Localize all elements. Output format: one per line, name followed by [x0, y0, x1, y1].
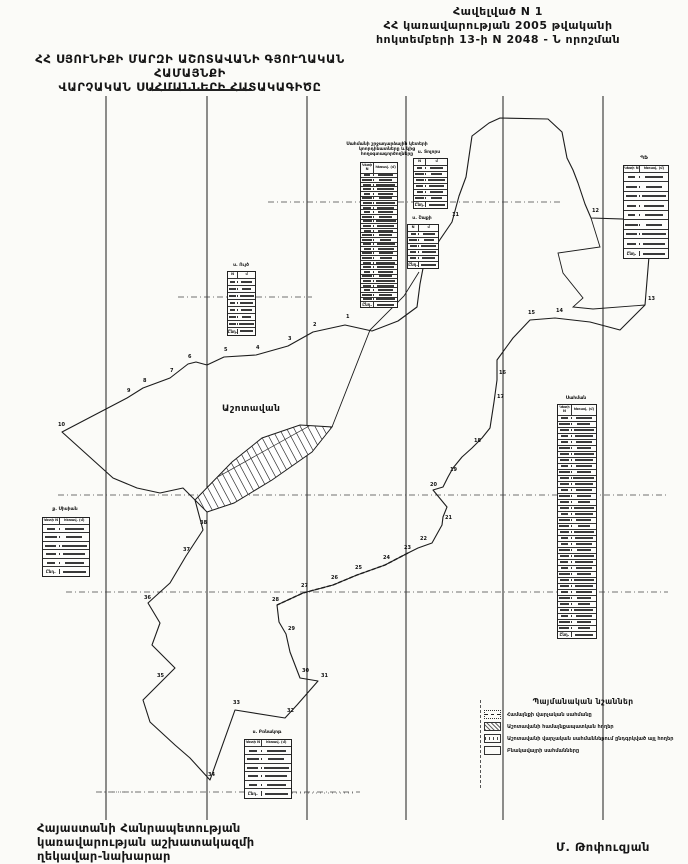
illegible-value — [362, 179, 372, 181]
illegible-value — [575, 537, 593, 539]
table-cell — [558, 579, 572, 581]
illegible-value — [379, 216, 392, 218]
illegible-value — [248, 775, 258, 777]
table-cell — [361, 225, 374, 227]
table-cell — [624, 195, 640, 197]
table-cell — [374, 280, 397, 282]
illegible-value — [574, 555, 594, 557]
illegible-value — [560, 477, 570, 479]
illegible-value — [626, 195, 636, 197]
table-cell — [572, 543, 596, 545]
legend-item: Աշոտավանի համայնքապատկան հողեր — [484, 722, 682, 731]
illegible-value — [559, 573, 570, 575]
table-cell — [374, 266, 397, 268]
table-cell — [572, 417, 596, 419]
illegible-value — [421, 245, 437, 247]
table-header-cell: հեռավ. (մ) — [640, 166, 668, 172]
table-cell — [558, 591, 572, 593]
table-cell — [374, 211, 397, 213]
illegible-value — [578, 501, 590, 503]
boundary-point-number: 6 — [188, 354, 192, 360]
illegible-value — [576, 615, 593, 617]
table-row — [43, 558, 89, 567]
table-cell — [426, 197, 447, 199]
table-cell — [60, 562, 89, 564]
table-total-label: Ընդ. — [624, 251, 640, 256]
illegible-value — [362, 294, 372, 296]
table-row — [228, 320, 255, 327]
table-row — [245, 780, 291, 789]
table-header-row: Կետի Nհեռավ. (մ) — [43, 518, 89, 524]
table-cell — [640, 214, 668, 216]
table-header-cell: Կետի N — [43, 518, 60, 524]
table-cell — [572, 483, 596, 485]
illegible-value — [363, 262, 371, 264]
illegible-value — [645, 214, 663, 216]
boundary-point-number: 25 — [355, 565, 362, 571]
table-header-cell: հեռավ. (մ) — [572, 405, 596, 415]
legend-title: Պայմանական նշաններ — [484, 697, 682, 706]
illegible-value — [561, 615, 568, 617]
table-cell — [572, 471, 596, 473]
illegible-value — [417, 167, 423, 169]
table-cell — [361, 285, 374, 287]
illegible-value — [560, 501, 570, 503]
table-caption-line: Սահման — [552, 396, 600, 401]
illegible-value — [364, 174, 370, 176]
table-cell — [558, 567, 572, 569]
illegible-value — [559, 549, 569, 551]
illegible-value — [560, 609, 569, 611]
adj-brnakot-table: Կետի Nհեռավ. (մ)Ընդ. — [244, 739, 292, 799]
table-cell — [245, 784, 262, 786]
boundary-point-number: 27 — [301, 583, 308, 589]
illegible-value — [575, 435, 593, 437]
table-cell — [374, 239, 397, 241]
illegible-value — [560, 483, 568, 485]
table-cell — [361, 216, 374, 218]
table-total-label: Ընդ. — [414, 202, 426, 207]
table-cell — [572, 561, 596, 563]
map-legend: Պայմանական նշաններ Համայնքի վարչական սահ… — [484, 697, 682, 758]
table-cell — [558, 477, 572, 479]
table-cell — [572, 579, 596, 581]
boundary-point-number: 12 — [592, 208, 599, 214]
table-cell — [361, 275, 374, 277]
illegible-value — [377, 285, 394, 287]
table-cell — [60, 528, 89, 530]
illegible-value — [376, 298, 396, 300]
table-total-value — [60, 571, 89, 573]
illegible-value — [560, 603, 570, 605]
table-cell — [572, 627, 596, 629]
table-cell — [374, 252, 397, 254]
empty-box-icon — [484, 746, 501, 755]
table-cell — [426, 191, 447, 193]
illegible-value — [410, 257, 415, 259]
table-cell — [558, 555, 572, 557]
illegible-value — [363, 220, 372, 222]
table-cell — [558, 501, 572, 503]
illegible-value — [363, 184, 372, 186]
adj-brnakot-title: ս. Բռնակոթ — [236, 730, 298, 735]
illegible-value — [560, 579, 569, 581]
illegible-value — [575, 561, 593, 563]
table-cell — [245, 775, 262, 777]
illegible-value — [560, 459, 568, 461]
adj-sisian-title: ք. Սիսիան — [36, 507, 94, 512]
illegible-value — [229, 323, 236, 325]
illegible-value — [559, 627, 569, 629]
illegible-value — [230, 302, 236, 304]
table-cell — [624, 176, 640, 178]
table-total-row: Ընդ. — [408, 261, 438, 268]
table-cell — [572, 459, 596, 461]
hatch-box-icon — [484, 722, 501, 731]
illegible-value — [65, 562, 84, 564]
table-total-label: Ընդ. — [408, 262, 419, 267]
table-cell — [374, 257, 397, 259]
illegible-value — [642, 195, 665, 197]
table-cell — [374, 225, 397, 227]
table-row — [624, 181, 668, 191]
table-cell — [374, 193, 397, 195]
illegible-value — [560, 453, 569, 455]
illegible-value — [627, 205, 636, 207]
illegible-value — [363, 298, 372, 300]
illegible-value — [410, 251, 416, 253]
table-cell — [426, 185, 447, 187]
illegible-total — [63, 571, 86, 573]
table-cell — [60, 545, 89, 547]
illegible-value — [575, 513, 592, 515]
illegible-value — [415, 173, 424, 175]
table-total-value — [238, 330, 255, 332]
table-cell — [572, 591, 596, 593]
illegible-value — [242, 288, 251, 290]
illegible-value — [362, 234, 372, 236]
table-row — [245, 746, 291, 755]
table-cell — [419, 257, 438, 259]
table-row — [43, 524, 89, 533]
table-row — [228, 313, 255, 320]
table-total-label: Ընդ. — [361, 302, 374, 307]
table-cell — [262, 750, 291, 752]
adj-tolors-title: ս. Տոլորս — [405, 150, 453, 155]
table-row — [624, 210, 668, 220]
table-cell — [361, 197, 374, 199]
illegible-value — [576, 489, 593, 491]
table-cell — [572, 495, 596, 497]
table-caption-line: ս. Շաքի — [400, 216, 444, 221]
boundary-point-number: 9 — [127, 388, 131, 394]
table-header-row: Nմ — [228, 272, 255, 278]
boundary-point-number: 28 — [272, 597, 279, 603]
boundary-point-number: 8 — [143, 378, 147, 384]
illegible-value — [416, 185, 423, 187]
boundary-point-number: 34 — [208, 772, 215, 778]
illegible-value — [363, 207, 371, 209]
illegible-value — [363, 266, 370, 268]
table-total-row: Ընդ. — [624, 248, 668, 259]
table-cell — [624, 205, 640, 207]
table-cell — [640, 195, 668, 197]
illegible-value — [560, 561, 568, 563]
illegible-value — [429, 185, 444, 187]
illegible-value — [46, 553, 56, 555]
table-cell — [640, 233, 668, 235]
illegible-value — [377, 188, 394, 190]
illegible-value — [574, 453, 594, 455]
table-cell — [558, 441, 572, 443]
illegible-value — [577, 423, 590, 425]
table-cell — [374, 289, 397, 291]
illegible-value — [376, 202, 395, 204]
illegible-value — [376, 280, 395, 282]
illegible-value — [561, 513, 568, 515]
illegible-value — [578, 627, 591, 629]
illegible-value — [363, 188, 370, 190]
boundary-point-number: 2 — [313, 322, 317, 328]
table-cell — [374, 275, 397, 277]
illegible-value — [431, 197, 443, 199]
table-caption-line: ՊՖ — [618, 156, 670, 161]
table-header-cell: Կետի N — [361, 163, 374, 173]
illegible-value — [578, 525, 591, 527]
boundary-point-number: 37 — [183, 547, 190, 553]
table-cell — [558, 495, 572, 497]
table-cell — [572, 525, 596, 527]
table-cell — [558, 609, 572, 611]
table-cell — [572, 597, 596, 599]
table-cell — [361, 262, 374, 264]
table-row — [624, 229, 668, 239]
illegible-total — [240, 330, 253, 332]
table-cell — [558, 465, 572, 467]
table-cell — [361, 207, 374, 209]
illegible-value — [577, 549, 590, 551]
table-row — [624, 200, 668, 210]
table-cell — [572, 621, 596, 623]
table-total-label: Ընդ. — [43, 569, 60, 574]
boundary-point-number: 1 — [346, 314, 350, 320]
table-cell — [558, 621, 572, 623]
boundary-point-number: 29 — [288, 626, 295, 632]
table-cell — [624, 224, 640, 226]
table-cell — [558, 459, 572, 461]
illegible-value — [577, 447, 590, 449]
table-cell — [558, 585, 572, 587]
illegible-value — [249, 750, 257, 752]
table-header-row: Կետի Nհեռավ. (մ) — [361, 163, 397, 173]
illegible-value — [249, 784, 257, 786]
boundary-point-number: 26 — [331, 575, 338, 581]
table-cell — [238, 302, 255, 304]
table-cell — [558, 615, 572, 617]
table-cell — [374, 243, 397, 245]
boundary-point-number: 35 — [157, 673, 164, 679]
table-cell — [374, 230, 397, 232]
table-row — [624, 172, 668, 182]
illegible-value — [247, 758, 259, 760]
boundary-point-number: 17 — [497, 394, 504, 400]
table-cell — [245, 758, 262, 760]
table-cell — [572, 573, 596, 575]
illegible-value — [364, 230, 371, 232]
table-cell — [228, 316, 238, 318]
illegible-value — [560, 555, 569, 557]
table-cell — [361, 230, 374, 232]
table-cell — [624, 214, 640, 216]
table-header-row: Կետի Nհեռավ. (մ) — [624, 166, 668, 172]
table-cell — [361, 298, 374, 300]
illegible-value — [267, 750, 286, 752]
illegible-value — [430, 191, 444, 193]
illegible-value — [575, 483, 594, 485]
illegible-value — [363, 285, 371, 287]
legend-item: Համայնքի վարչական սահմանը — [484, 710, 682, 719]
table-cell — [228, 281, 238, 283]
illegible-total — [643, 253, 665, 255]
illegible-value — [409, 239, 417, 241]
table-cell — [228, 295, 238, 297]
table-cell — [361, 257, 374, 259]
table-cell — [245, 767, 262, 769]
coords-right-table: Կետի Nհեռավ. (մ)Ընդ. — [557, 404, 597, 639]
table-row — [624, 238, 668, 248]
illegible-value — [62, 545, 86, 547]
illegible-value — [561, 489, 568, 491]
table-cell — [419, 245, 438, 247]
table-cell — [43, 528, 60, 530]
table-cell — [361, 220, 374, 222]
table-cell — [262, 775, 291, 777]
illegible-value — [561, 567, 568, 569]
legend-item-label: Աշոտավանի վարչական սահմաններում ընդգրկվա… — [507, 736, 673, 742]
table-cell — [414, 173, 426, 175]
illegible-value — [362, 275, 372, 277]
illegible-value — [364, 193, 370, 195]
illegible-total — [421, 264, 436, 266]
table-cell — [408, 245, 419, 247]
table-cell — [238, 323, 255, 325]
boundary-point-number: 21 — [445, 515, 452, 521]
table-cell — [374, 188, 397, 190]
illegible-value — [576, 567, 592, 569]
table-cell — [572, 567, 596, 569]
illegible-value — [561, 417, 567, 419]
tick-box-icon — [484, 734, 501, 743]
boundary-line-icon — [484, 710, 501, 719]
table-cell — [361, 211, 374, 213]
table-header-cell: Կետի N — [245, 740, 262, 746]
illegible-value — [431, 173, 442, 175]
illegible-value — [574, 609, 593, 611]
boundary-point-number: 10 — [58, 422, 65, 428]
table-caption-line: ս. Բռնակոթ — [236, 730, 298, 735]
table-total-value — [640, 253, 668, 255]
boundary-point-number: 3 — [288, 336, 292, 342]
illegible-value — [559, 621, 570, 623]
table-header-cell: հեռավ. (մ) — [374, 163, 397, 173]
table-cell — [228, 323, 238, 325]
illegible-value — [576, 519, 591, 521]
table-header-cell: մ — [419, 225, 438, 231]
table-total-value — [262, 793, 291, 795]
illegible-value — [559, 471, 570, 473]
table-cell — [374, 285, 397, 287]
table-cell — [60, 553, 89, 555]
table-cell — [374, 216, 397, 218]
illegible-value — [377, 225, 395, 227]
illegible-value — [574, 531, 594, 533]
table-total-row: Ընդ. — [361, 301, 397, 307]
table-cell — [572, 435, 596, 437]
illegible-value — [362, 239, 371, 241]
table-cell — [361, 179, 374, 181]
legend-item: Աշոտավանի վարչական սահմաններում ընդգրկվա… — [484, 734, 682, 743]
table-cell — [558, 531, 572, 533]
illegible-total — [575, 634, 594, 636]
table-caption-line: ս. Ույծ — [219, 263, 263, 268]
table-cell — [419, 233, 438, 235]
illegible-value — [577, 573, 591, 575]
table-row — [228, 292, 255, 299]
table-cell — [228, 309, 238, 311]
illegible-value — [560, 429, 569, 431]
table-row — [245, 771, 291, 780]
table-cell — [558, 573, 572, 575]
illegible-value — [560, 531, 569, 533]
illegible-value — [577, 495, 591, 497]
table-cell — [572, 441, 596, 443]
illegible-value — [247, 767, 258, 769]
table-cell — [374, 202, 397, 204]
table-total-label: Ընդ. — [245, 791, 262, 796]
table-row — [43, 541, 89, 550]
illegible-value — [561, 543, 568, 545]
illegible-value — [379, 275, 392, 277]
illegible-value — [643, 243, 664, 245]
table-cell — [374, 262, 397, 264]
table-cell — [361, 280, 374, 282]
illegible-value — [561, 435, 569, 437]
illegible-value — [268, 758, 284, 760]
illegible-value — [577, 621, 592, 623]
illegible-value — [576, 465, 592, 467]
illegible-value — [559, 519, 570, 521]
table-cell — [361, 193, 374, 195]
illegible-value — [264, 767, 288, 769]
table-cell — [262, 784, 291, 786]
table-cell — [43, 562, 60, 564]
table-cell — [558, 471, 572, 473]
illegible-value — [560, 585, 568, 587]
table-total-row: Ընդ. — [43, 566, 89, 576]
table-cell — [361, 202, 374, 204]
table-row — [43, 549, 89, 558]
boundary-point-number: 36 — [144, 595, 151, 601]
table-total-value — [426, 204, 447, 206]
table-cell — [238, 316, 255, 318]
table-row — [228, 285, 255, 292]
boundary-point-number: 15 — [528, 310, 535, 316]
illegible-value — [45, 545, 56, 547]
table-cell — [414, 179, 426, 181]
illegible-value — [379, 197, 392, 199]
table-cell — [558, 561, 572, 563]
illegible-value — [627, 243, 636, 245]
